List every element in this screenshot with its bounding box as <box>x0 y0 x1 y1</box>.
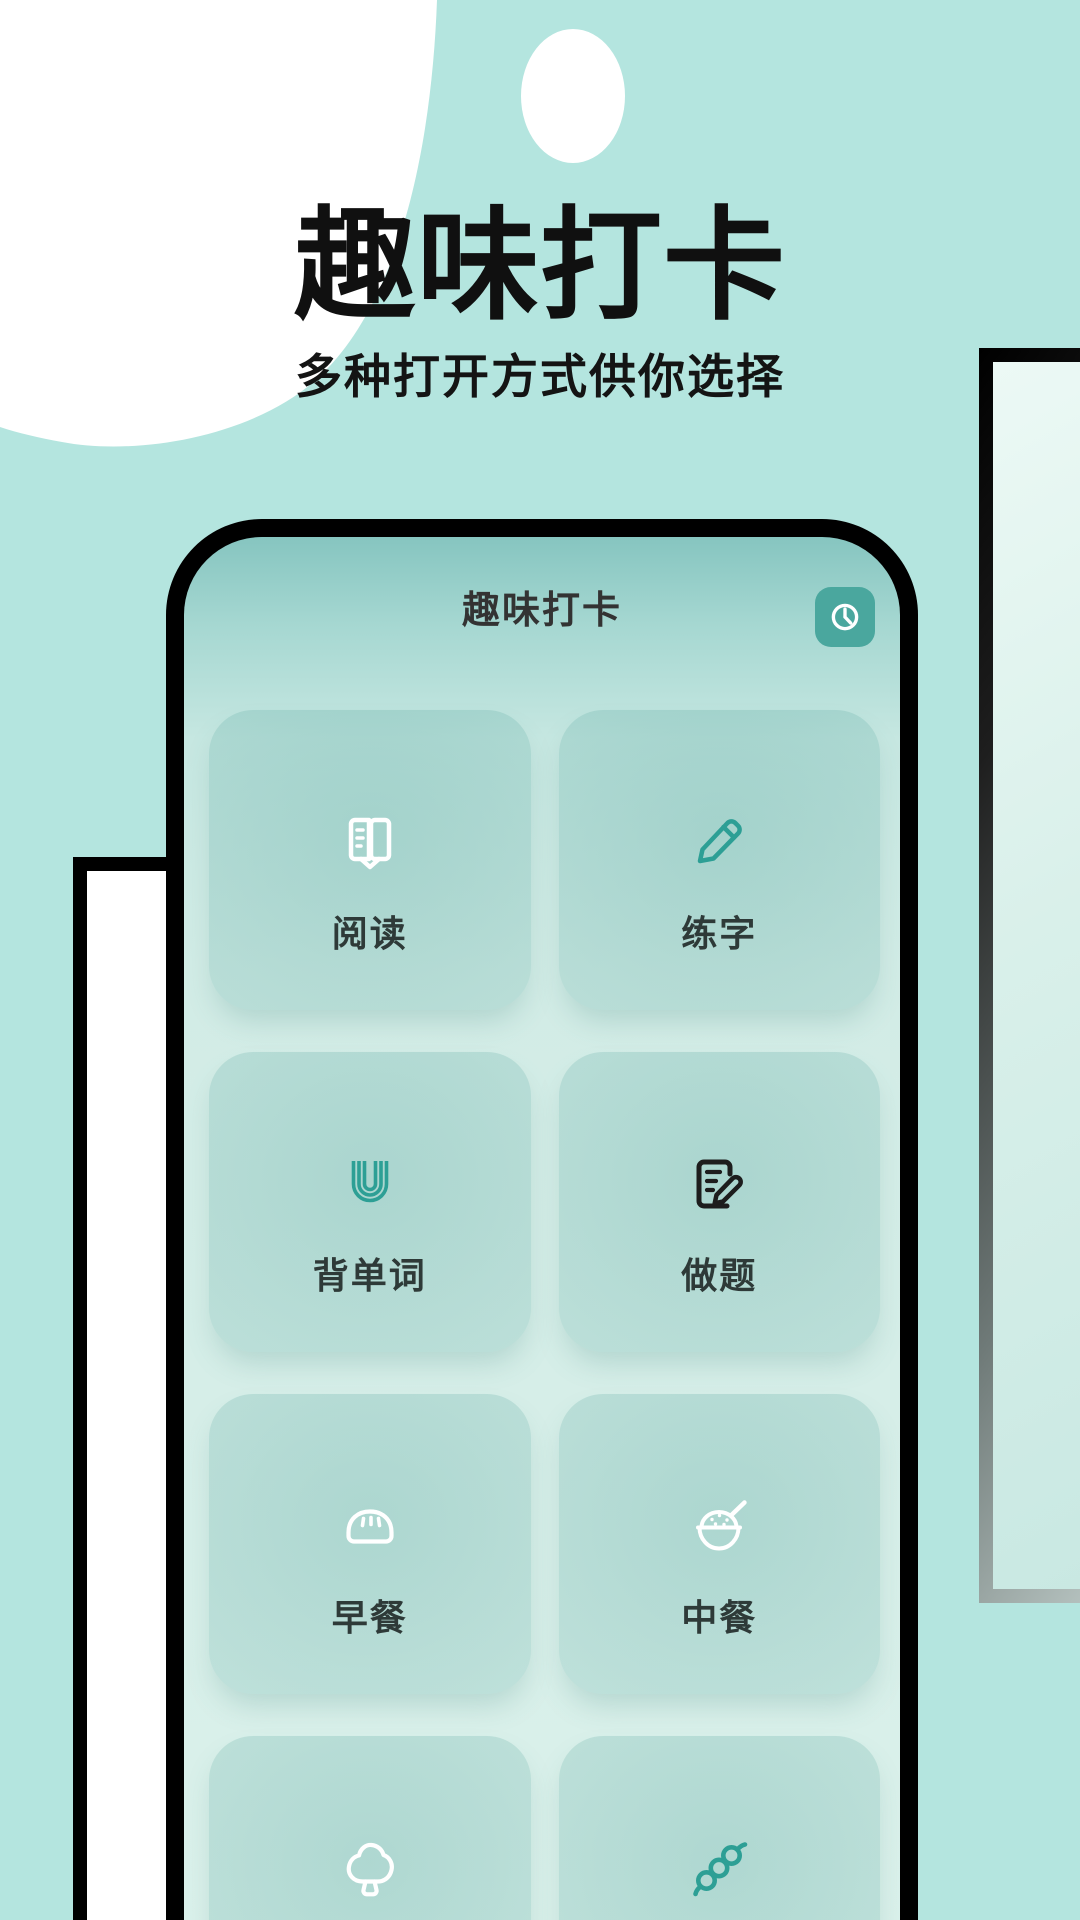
decorative-rect-left-fill <box>87 871 168 1920</box>
decorative-rect-right <box>979 348 1080 1603</box>
card-reading[interactable]: 阅读 <box>209 710 531 1010</box>
mushroom-icon <box>338 1836 402 1900</box>
checkin-card-grid: 阅读 练字 <box>209 710 880 1920</box>
app-header-title: 趣味打卡 <box>184 589 900 633</box>
clock-icon <box>821 593 869 641</box>
card-vocabulary[interactable]: 背单词 <box>209 1052 531 1352</box>
card-handwriting[interactable]: 练字 <box>559 710 881 1010</box>
letter-u-icon <box>338 1152 402 1216</box>
card-exercises[interactable]: 做题 <box>559 1052 881 1352</box>
card-lunch[interactable]: 中餐 <box>559 1394 881 1694</box>
phone-screen: 趣味打卡 <box>184 537 900 1920</box>
card-mushroom[interactable] <box>209 1736 531 1920</box>
phone-frame: 趣味打卡 <box>166 519 918 1920</box>
card-label: 中餐 <box>681 1598 757 1638</box>
pencil-icon <box>687 810 751 874</box>
card-label: 早餐 <box>332 1598 408 1638</box>
pea-pod-icon <box>687 1836 751 1900</box>
decorative-rect-right-fill <box>993 362 1080 1589</box>
app-store-screenshot: { "hero": { "title": "趣味打卡", "subtitle":… <box>0 0 1080 1920</box>
page-title: 趣味打卡 <box>0 196 1080 336</box>
book-icon <box>338 810 402 874</box>
card-breakfast[interactable]: 早餐 <box>209 1394 531 1694</box>
decorative-ellipse-small <box>521 29 625 163</box>
card-label: 背单词 <box>313 1256 427 1296</box>
history-clock-button[interactable] <box>815 587 875 647</box>
bread-icon <box>338 1494 402 1558</box>
page-subtitle: 多种打开方式供你选择 <box>0 350 1080 406</box>
rice-bowl-icon <box>687 1494 751 1558</box>
card-label: 阅读 <box>332 914 408 954</box>
card-label: 练字 <box>681 914 757 954</box>
document-pencil-icon <box>687 1152 751 1216</box>
decorative-rect-left <box>73 857 166 1920</box>
card-peas[interactable] <box>559 1736 881 1920</box>
card-label: 做题 <box>681 1256 757 1296</box>
